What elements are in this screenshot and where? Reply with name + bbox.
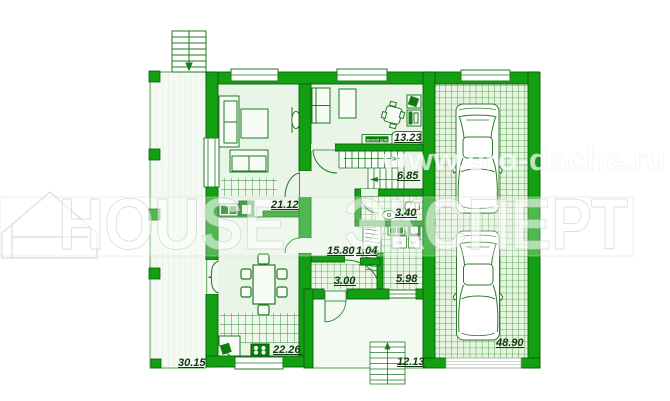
svg-text:www.sro-dache.ru: www.sro-dache.ru <box>381 142 666 177</box>
svg-text:HOUSE: HOUSE <box>58 185 286 265</box>
svg-text:ЭКСПЕРТ: ЭКСПЕРТ <box>344 185 628 265</box>
